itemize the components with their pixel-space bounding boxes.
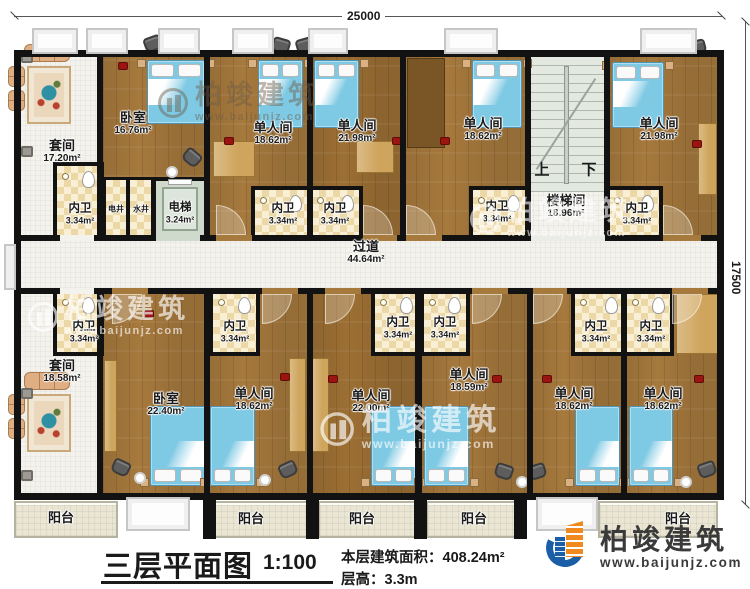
toilet-icon <box>448 297 461 314</box>
wall <box>307 288 313 497</box>
elevator-door <box>168 179 192 185</box>
column <box>203 495 216 539</box>
room-label-bathroom: 内卫3.34m² <box>623 203 652 226</box>
side-table <box>166 166 178 178</box>
window <box>4 244 16 290</box>
room-label-suite-top: 套间17.20m² <box>43 139 80 165</box>
balcony-label: 阳台 <box>461 512 487 526</box>
dimension-top-value: 25000 <box>342 9 385 23</box>
rug <box>27 394 71 452</box>
sink-icon <box>632 299 639 306</box>
room-label-bathroom: 内卫3.34m² <box>637 321 666 344</box>
tv-icon <box>492 375 502 383</box>
door-opening <box>663 235 701 241</box>
bed <box>147 60 205 124</box>
floor-height-value: 3.3m <box>385 572 418 588</box>
wall <box>525 56 531 241</box>
floor-area-value: 408.24m² <box>443 550 505 566</box>
toilet-icon <box>82 297 95 314</box>
tv-icon <box>694 375 704 383</box>
floor-area-label: 本层建筑面积： <box>341 550 443 566</box>
plan-scale: 1:100 <box>263 551 317 575</box>
desk <box>312 358 329 452</box>
window <box>158 28 200 54</box>
room-label-single-4: 单人间21.98m² <box>639 117 678 143</box>
room-label-bathroom: 内卫3.34m² <box>384 317 413 340</box>
door-opening <box>672 288 708 294</box>
sink-icon <box>218 299 225 306</box>
sink-icon <box>260 197 267 204</box>
wall <box>717 50 724 500</box>
tv-icon <box>692 140 702 148</box>
floor-height-label: 层高： <box>341 572 385 588</box>
window <box>640 28 697 54</box>
tv-icon <box>118 62 128 70</box>
wardrobe <box>407 58 445 148</box>
window <box>86 28 128 54</box>
room-label-bathroom: 内卫3.34m² <box>70 321 99 344</box>
dimension-right-value: 17500 <box>729 256 743 299</box>
room-label-single-6: 单人间22.00m² <box>351 389 390 415</box>
room-label-single-8: 单人间18.62m² <box>554 387 593 413</box>
room-label-bedroom-bottom: 卧室22.40m² <box>147 392 184 418</box>
wall <box>604 56 610 241</box>
desk <box>698 123 717 195</box>
wall <box>621 288 627 497</box>
door-opening <box>262 288 298 294</box>
balcony-label: 阳台 <box>238 512 264 526</box>
bed <box>575 406 620 486</box>
column <box>414 495 427 539</box>
bed <box>258 60 303 128</box>
wall <box>204 288 210 497</box>
toilet-icon <box>238 297 251 314</box>
door-opening <box>112 288 148 294</box>
room-label-bathroom: 内卫3.34m² <box>431 317 460 340</box>
room-label-single-3: 单人间18.62m² <box>463 117 502 143</box>
wall <box>14 493 724 500</box>
sink-icon <box>380 299 387 306</box>
desk <box>289 358 306 452</box>
column <box>514 495 527 539</box>
brand-url: www.baijunjz.com <box>600 556 742 570</box>
room-label-bathroom: 内卫3.34m² <box>483 201 512 224</box>
bed <box>629 406 673 486</box>
desk <box>356 141 394 173</box>
desk <box>213 141 255 177</box>
dimension-line-right <box>745 22 746 505</box>
door-opening <box>472 288 508 294</box>
speaker-icon <box>21 388 33 399</box>
sink-icon <box>580 299 587 306</box>
floor-area-line: 本层建筑面积：408.24m² <box>341 546 505 567</box>
door-opening <box>406 235 442 241</box>
speaker-icon <box>21 146 33 157</box>
door-opening <box>216 235 252 241</box>
room-label-bathroom: 内卫3.34m² <box>66 203 95 226</box>
wall <box>527 288 533 497</box>
room-label-single-9: 单人间18.62m² <box>643 387 682 413</box>
room-label-single-5: 单人间18.62m² <box>234 387 273 413</box>
room-label-elevator: 电梯3.24m² <box>166 202 195 225</box>
balcony-label: 阳台 <box>48 511 74 525</box>
wall <box>400 56 406 241</box>
bed <box>371 406 416 486</box>
bed <box>424 406 469 486</box>
tv-icon <box>224 137 234 145</box>
tv-icon <box>280 373 290 381</box>
room-label-water-shaft: 水井 <box>133 206 149 215</box>
room-label-bedroom-top: 卧室16.76m² <box>114 111 151 137</box>
room-label-bathroom: 内卫3.34m² <box>321 203 350 226</box>
side-table <box>259 474 271 486</box>
wall <box>204 56 210 241</box>
brand-logo: 柏竣建筑 www.baijunjz.com <box>546 519 742 577</box>
brand-name: 柏竣建筑 <box>600 526 742 554</box>
speaker-icon <box>21 470 33 481</box>
bed <box>210 406 255 486</box>
elevator-opening <box>156 235 200 241</box>
sink-icon <box>614 197 621 204</box>
window <box>308 28 348 54</box>
balcony-label: 阳台 <box>349 512 375 526</box>
sink-icon <box>62 173 69 180</box>
title-underline <box>101 581 333 584</box>
room-label-bathroom: 内卫3.34m² <box>582 321 611 344</box>
wall <box>97 56 103 241</box>
floor-plan: 25000 17500 <box>0 0 750 589</box>
room-label-bathroom: 内卫3.34m² <box>269 203 298 226</box>
stairs-down-label: 下 <box>581 159 596 180</box>
wall <box>307 56 313 241</box>
sink-icon <box>429 299 436 306</box>
rug <box>27 66 71 124</box>
window <box>444 28 498 54</box>
door-opening <box>533 288 567 294</box>
tv-icon <box>328 375 338 383</box>
column <box>306 495 319 539</box>
door-opening <box>60 288 94 294</box>
side-table <box>680 476 692 488</box>
room-label-single-1: 单人间18.62m² <box>253 121 292 147</box>
tv-icon <box>440 137 450 145</box>
door-opening <box>325 288 361 294</box>
toilet-icon <box>652 297 665 314</box>
side-table <box>134 472 146 484</box>
room-label-bathroom: 内卫3.34m² <box>221 321 250 344</box>
floor-height-line: 层高：3.3m <box>341 568 418 589</box>
window <box>126 497 190 531</box>
window <box>232 28 274 54</box>
desk <box>104 360 117 452</box>
toilet-icon <box>82 171 95 188</box>
stair-opening <box>531 235 605 241</box>
wall <box>415 288 422 497</box>
room-label-single-7: 单人间18.59m² <box>449 368 488 394</box>
room-label-corridor: 过道44.64m² <box>347 240 384 266</box>
room-label-suite-bottom: 套间18.58m² <box>43 359 80 385</box>
toilet-icon <box>605 297 618 314</box>
tv-icon <box>542 375 552 383</box>
room-label-electric-shaft: 电井 <box>108 206 124 215</box>
room-label-single-2: 单人间21.98m² <box>337 119 376 145</box>
toilet-icon <box>400 297 413 314</box>
tv-icon <box>144 310 154 318</box>
wall <box>97 288 103 497</box>
room-label-stairwell: 楼梯间18.96m² <box>546 194 585 220</box>
door-opening <box>60 235 94 241</box>
sink-icon <box>62 299 69 306</box>
bed <box>150 406 206 486</box>
brand-logo-icon <box>546 519 592 577</box>
plan-title: 三层平面图 <box>103 543 253 585</box>
stairs-up-label: 上 <box>534 159 549 180</box>
window <box>32 28 78 54</box>
